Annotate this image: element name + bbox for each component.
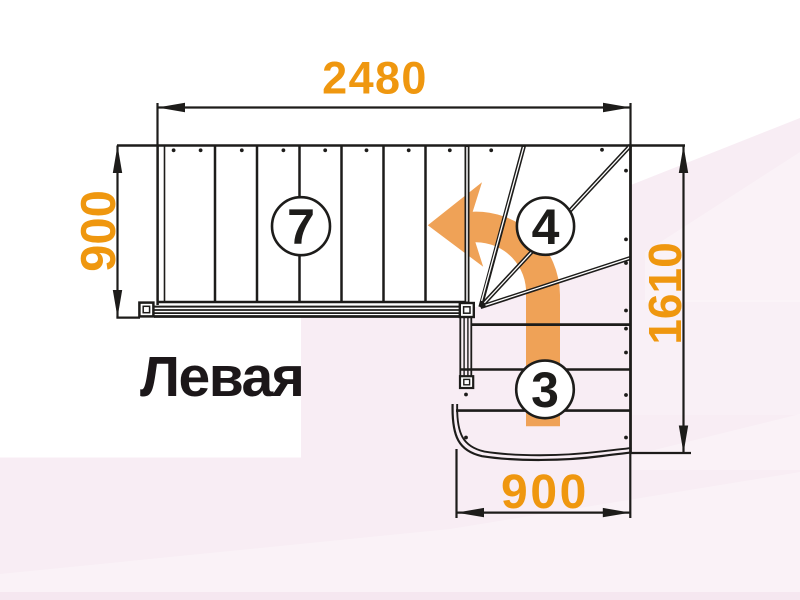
svg-text:3: 3	[531, 362, 559, 418]
svg-text:900: 900	[72, 190, 126, 272]
svg-text:Левая: Левая	[140, 345, 303, 409]
svg-text:1610: 1610	[639, 242, 691, 344]
svg-text:4: 4	[532, 199, 560, 255]
svg-text:2480: 2480	[322, 53, 428, 104]
svg-text:7: 7	[287, 199, 315, 255]
svg-text:900: 900	[501, 466, 589, 519]
